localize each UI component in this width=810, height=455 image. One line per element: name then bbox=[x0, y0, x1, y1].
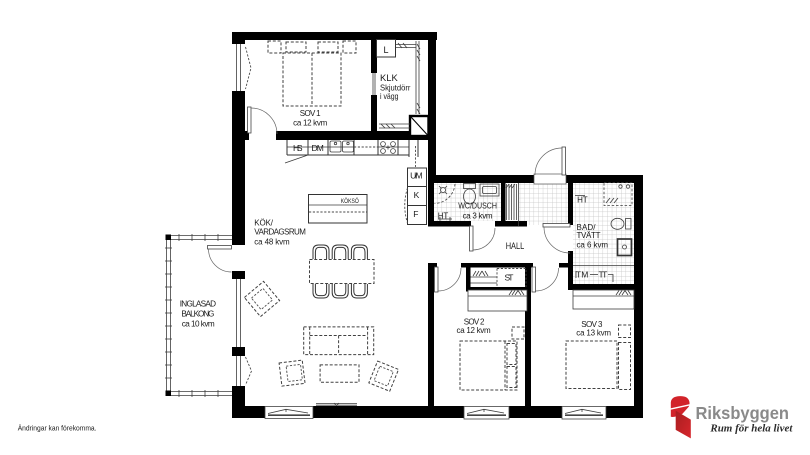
svg-text:Ändringar kan förekomma.: Ändringar kan förekomma. bbox=[18, 424, 97, 433]
svg-text:KÖKSÖ: KÖKSÖ bbox=[341, 197, 359, 205]
svg-text:HALL: HALL bbox=[506, 241, 525, 251]
svg-text:SOV 3: SOV 3 bbox=[581, 320, 603, 329]
svg-text:SOV 1: SOV 1 bbox=[300, 109, 321, 118]
svg-text:DM: DM bbox=[312, 143, 324, 153]
svg-text:VARDAGSRUM: VARDAGSRUM bbox=[254, 228, 306, 237]
svg-text:Rum för hela livet: Rum för hela livet bbox=[709, 423, 793, 435]
svg-text:WC/DUSCH: WC/DUSCH bbox=[458, 201, 497, 211]
svg-text:ca 10 kvm: ca 10 kvm bbox=[182, 319, 215, 328]
svg-text:Riksbyggen: Riksbyggen bbox=[696, 403, 790, 423]
svg-text:ca 3 kvm: ca 3 kvm bbox=[463, 211, 493, 220]
svg-text:ca 6 kvm: ca 6 kvm bbox=[577, 241, 609, 250]
svg-text:ST: ST bbox=[505, 273, 514, 283]
svg-text:ca 12 kvm: ca 12 kvm bbox=[293, 118, 327, 127]
svg-text:ca 48 kvm: ca 48 kvm bbox=[254, 238, 290, 247]
svg-text:U/M: U/M bbox=[410, 171, 423, 181]
svg-text:TM: TM bbox=[576, 270, 589, 280]
svg-text:KLK: KLK bbox=[380, 73, 399, 83]
svg-text:HS: HS bbox=[293, 143, 303, 153]
svg-text:TT: TT bbox=[599, 270, 608, 280]
svg-text:L: L bbox=[383, 45, 388, 55]
svg-text:KÖK/: KÖK/ bbox=[254, 219, 273, 228]
svg-text:ca 12 kvm: ca 12 kvm bbox=[457, 326, 491, 335]
svg-text:K: K bbox=[414, 190, 420, 200]
svg-text:F: F bbox=[413, 209, 418, 219]
svg-text:HT: HT bbox=[438, 211, 449, 220]
svg-text:INGLASAD: INGLASAD bbox=[180, 300, 216, 309]
svg-text:TVÄTT: TVÄTT bbox=[577, 231, 601, 240]
svg-text:HT: HT bbox=[577, 195, 588, 204]
svg-text:ca 13 kvm: ca 13 kvm bbox=[576, 329, 611, 338]
svg-text:BALKONG: BALKONG bbox=[181, 310, 214, 319]
svg-text:i vägg: i vägg bbox=[380, 92, 399, 101]
